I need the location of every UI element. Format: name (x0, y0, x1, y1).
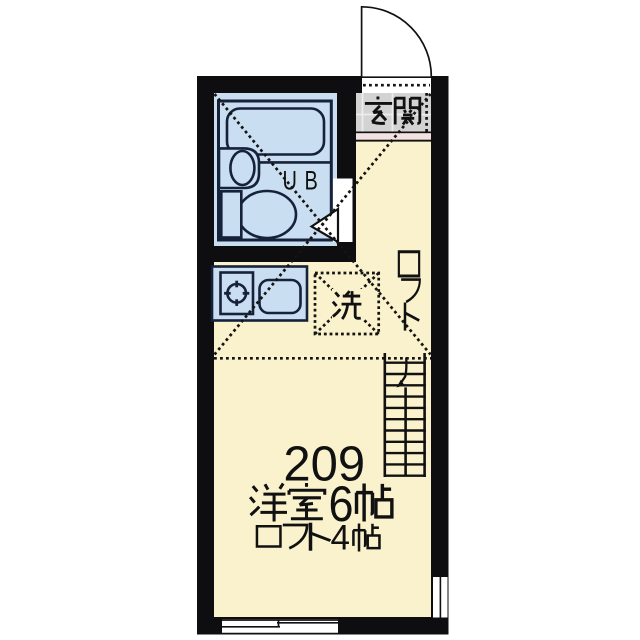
svg-text:B: B (305, 166, 318, 197)
svg-text:4: 4 (330, 519, 349, 558)
